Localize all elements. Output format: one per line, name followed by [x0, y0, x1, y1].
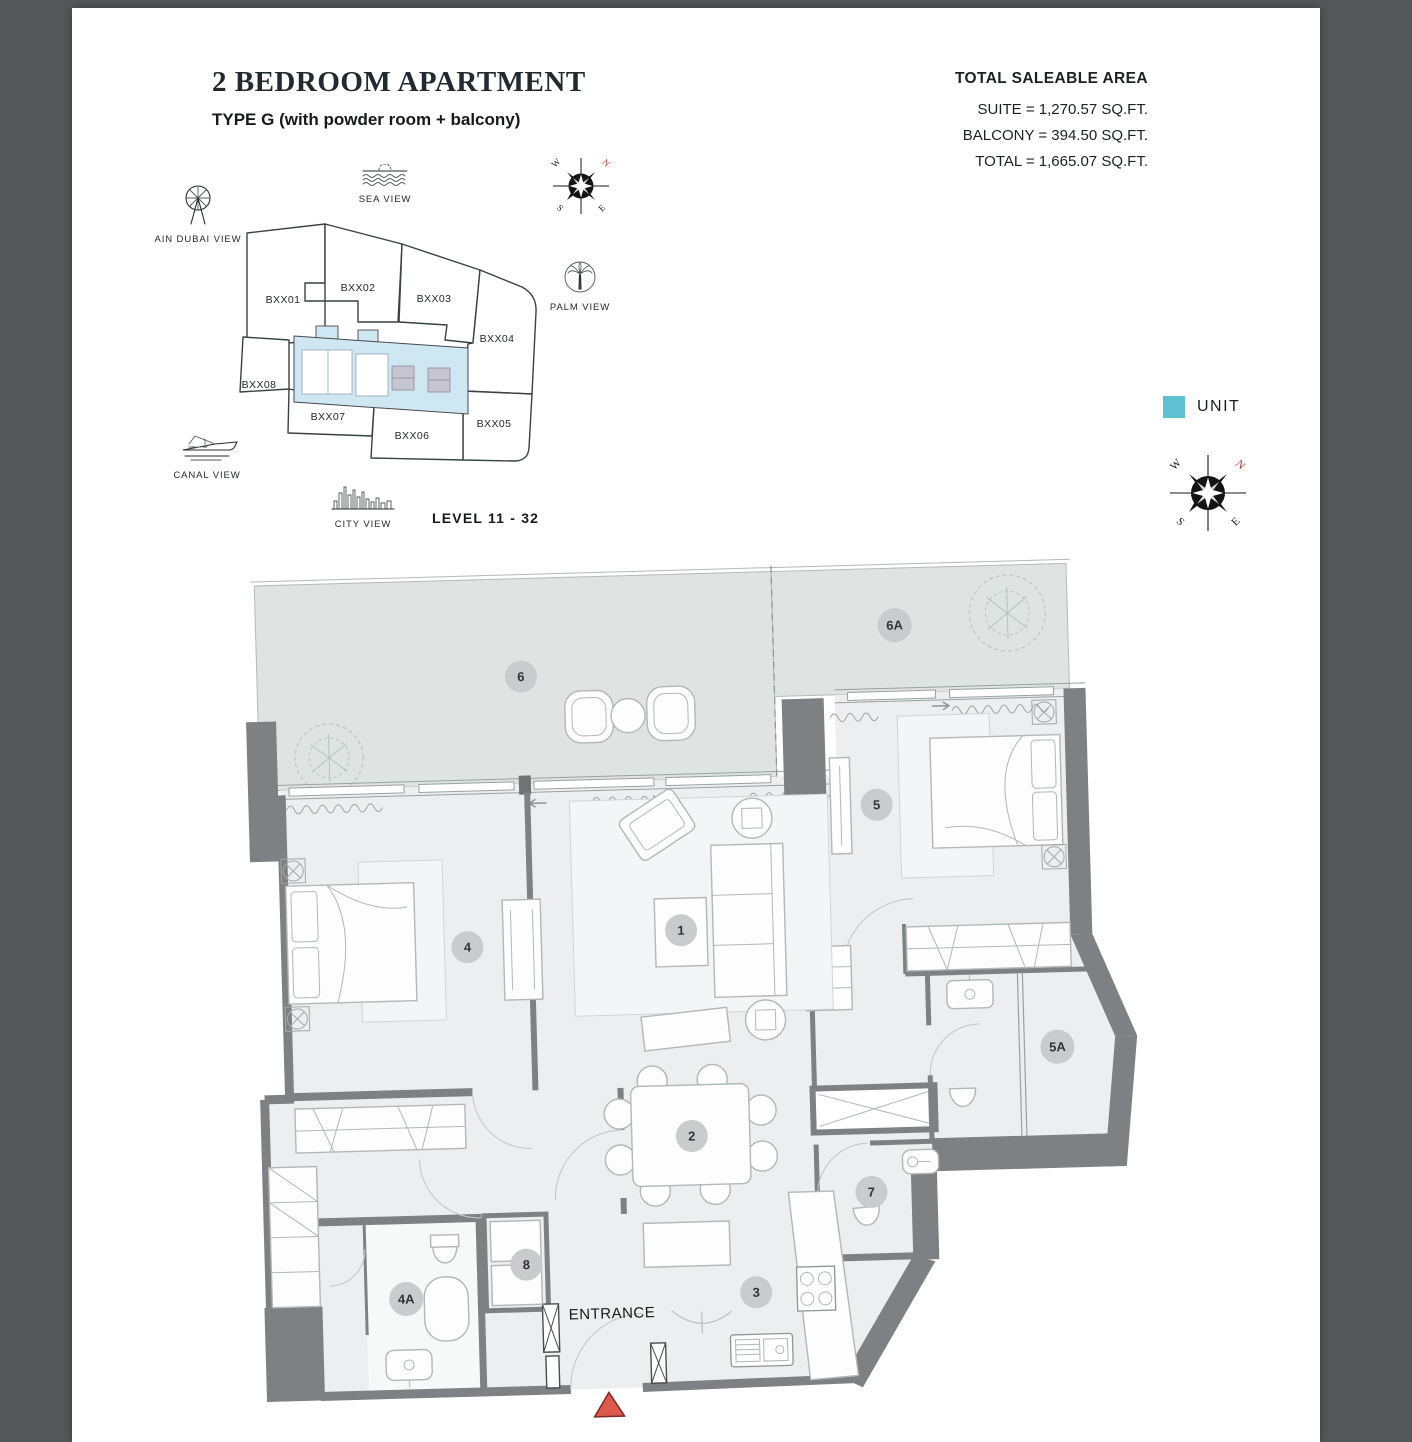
unit-legend: UNIT: [1163, 396, 1240, 418]
area-line-total: TOTAL = 1,665.07 SQ.FT.: [955, 149, 1148, 175]
unit-label: BXX02: [341, 282, 376, 294]
unit-label: BXX04: [480, 333, 515, 345]
viewer-background: 2 BEDROOM APARTMENT TYPE G (with powder …: [0, 0, 1412, 1442]
keyplan-building: BXX01 BXX02 BXX03 BXX04 BXX05 BXX06 BXX0…: [240, 224, 536, 461]
marker-4: 4: [464, 940, 472, 955]
unit-label: BXX01: [266, 294, 301, 306]
unit-label: BXX08: [242, 379, 277, 391]
compass-w: W: [1168, 457, 1184, 473]
stove-icon: [797, 1266, 836, 1311]
marker-3: 3: [752, 1285, 760, 1300]
wall-corner: [264, 1306, 325, 1402]
entrance-label: ENTRANCE: [569, 1304, 656, 1323]
page-title: 2 BEDROOM APARTMENT: [212, 66, 586, 99]
marker-5: 5: [873, 797, 881, 812]
wall-column: [246, 721, 280, 862]
wardrobe-bedroom4: [502, 899, 543, 1000]
unit-label: BXX05: [477, 418, 512, 430]
compass-rose-icon-large: W N S E: [1158, 443, 1258, 543]
marker-6a: 6A: [886, 617, 904, 632]
unit-label: BXX06: [395, 430, 430, 442]
saleable-area-heading: TOTAL SALEABLE AREA: [955, 70, 1148, 88]
marker-8: 8: [523, 1257, 531, 1272]
compass-e: E: [1229, 515, 1242, 528]
corridor-wardrobe: [829, 757, 852, 854]
entrance-marker-triangle: [594, 1392, 625, 1417]
unit-legend-label: UNIT: [1197, 398, 1240, 416]
unit-legend-swatch: [1163, 396, 1185, 418]
compass-s: S: [1174, 515, 1187, 528]
wall-band: [911, 1171, 939, 1260]
unit-polygon-bxx01: [247, 224, 325, 345]
kitchen-sink-icon: [730, 1333, 793, 1367]
keyplan: BXX01 BXX02 BXX03 BXX04 BXX05 BXX06 BXX0…: [140, 155, 620, 545]
compass-n: N: [1233, 458, 1247, 472]
area-line-suite: SUITE = 1,270.57 SQ.FT.: [955, 97, 1148, 123]
wardrobe-bedroom5: [906, 922, 1071, 971]
closet-grid: [269, 1166, 321, 1307]
unit-label: BXX03: [417, 293, 452, 305]
keyplan-core: [294, 326, 468, 414]
saleable-area-summary: TOTAL SALEABLE AREA SUITE = 1,270.57 SQ.…: [955, 70, 1148, 175]
unit-label: BXX07: [311, 411, 346, 423]
wall-band: [932, 1133, 1115, 1171]
marker-4a: 4A: [398, 1291, 416, 1306]
wardrobe-dressing: [295, 1104, 466, 1153]
marker-2: 2: [688, 1128, 696, 1143]
marker-7: 7: [868, 1184, 876, 1199]
marker-1: 1: [677, 923, 685, 938]
page-subtitle: TYPE G (with powder room + balcony): [212, 110, 520, 130]
marker-6: 6: [517, 669, 525, 684]
balcony-6a: [771, 563, 1069, 696]
floorplan: 1 2 3 4 4A 5 5A 6 6A 7 8 ENTRANCE: [230, 545, 1140, 1442]
area-line-balcony: BALCONY = 394.50 SQ.FT.: [955, 123, 1148, 149]
marker-5a: 5A: [1049, 1039, 1067, 1054]
unit-polygon-bxx02: [325, 224, 402, 322]
